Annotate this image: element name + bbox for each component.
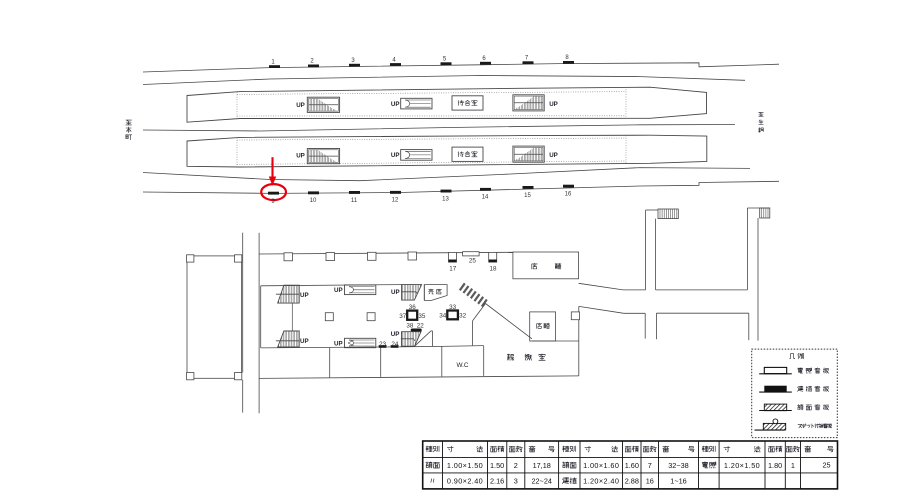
svg-text:1.80: 1.80 (768, 461, 782, 470)
svg-text:1.60: 1.60 (625, 461, 639, 470)
svg-text:UP: UP (549, 152, 558, 159)
svg-text:1.00×1.50: 1.00×1.50 (447, 461, 483, 470)
svg-text:UP: UP (391, 152, 400, 159)
svg-text:12: 12 (392, 198, 399, 204)
svg-text:15: 15 (524, 193, 531, 199)
svg-text:38: 38 (406, 323, 414, 330)
svg-text:18: 18 (489, 265, 497, 272)
svg-text:UP: UP (391, 331, 400, 338)
svg-text:1: 1 (791, 461, 795, 470)
svg-text:25: 25 (822, 461, 830, 470)
svg-text:UP: UP (334, 287, 343, 294)
svg-text:2: 2 (514, 461, 518, 470)
svg-text:22~24: 22~24 (531, 477, 552, 486)
svg-text:UP: UP (296, 153, 305, 160)
svg-text:0.90×2.40: 0.90×2.40 (447, 477, 483, 486)
svg-text:1~16: 1~16 (670, 477, 686, 486)
svg-text:36: 36 (409, 304, 417, 311)
svg-text:25: 25 (469, 258, 477, 265)
svg-text:35: 35 (418, 313, 426, 320)
svg-text:1.20×1.50: 1.20×1.50 (724, 461, 760, 470)
svg-text:UP: UP (296, 102, 305, 109)
svg-text:16: 16 (646, 477, 654, 486)
svg-text:14: 14 (482, 195, 489, 201)
svg-text:17: 17 (449, 265, 457, 272)
svg-text:16: 16 (565, 192, 572, 198)
svg-text:1.50: 1.50 (490, 461, 504, 470)
svg-text:UP: UP (334, 341, 343, 348)
svg-text:UP: UP (391, 289, 400, 296)
svg-text:7: 7 (648, 461, 652, 470)
svg-text:1.00×1.60: 1.00×1.60 (583, 461, 619, 470)
svg-text:13: 13 (442, 196, 449, 202)
svg-text:10: 10 (310, 198, 317, 204)
svg-text:UP: UP (391, 101, 400, 108)
svg-text:UP: UP (300, 292, 309, 299)
svg-text:37: 37 (399, 313, 407, 320)
svg-text:32~38: 32~38 (668, 461, 689, 470)
svg-text:3: 3 (514, 477, 518, 486)
svg-text:32: 32 (459, 313, 467, 320)
svg-text:UP: UP (300, 338, 309, 345)
svg-text:17,18: 17,18 (533, 461, 551, 470)
svg-text:34: 34 (439, 313, 447, 320)
svg-text:33: 33 (449, 304, 457, 311)
svg-text:2.88: 2.88 (625, 477, 639, 486)
svg-text:2.16: 2.16 (490, 477, 504, 486)
svg-text:11: 11 (351, 198, 358, 204)
svg-text:UP: UP (549, 101, 558, 108)
svg-text:22: 22 (417, 323, 425, 330)
svg-text:W.C: W.C (456, 362, 468, 369)
svg-text:1.20×2.40: 1.20×2.40 (583, 477, 619, 486)
